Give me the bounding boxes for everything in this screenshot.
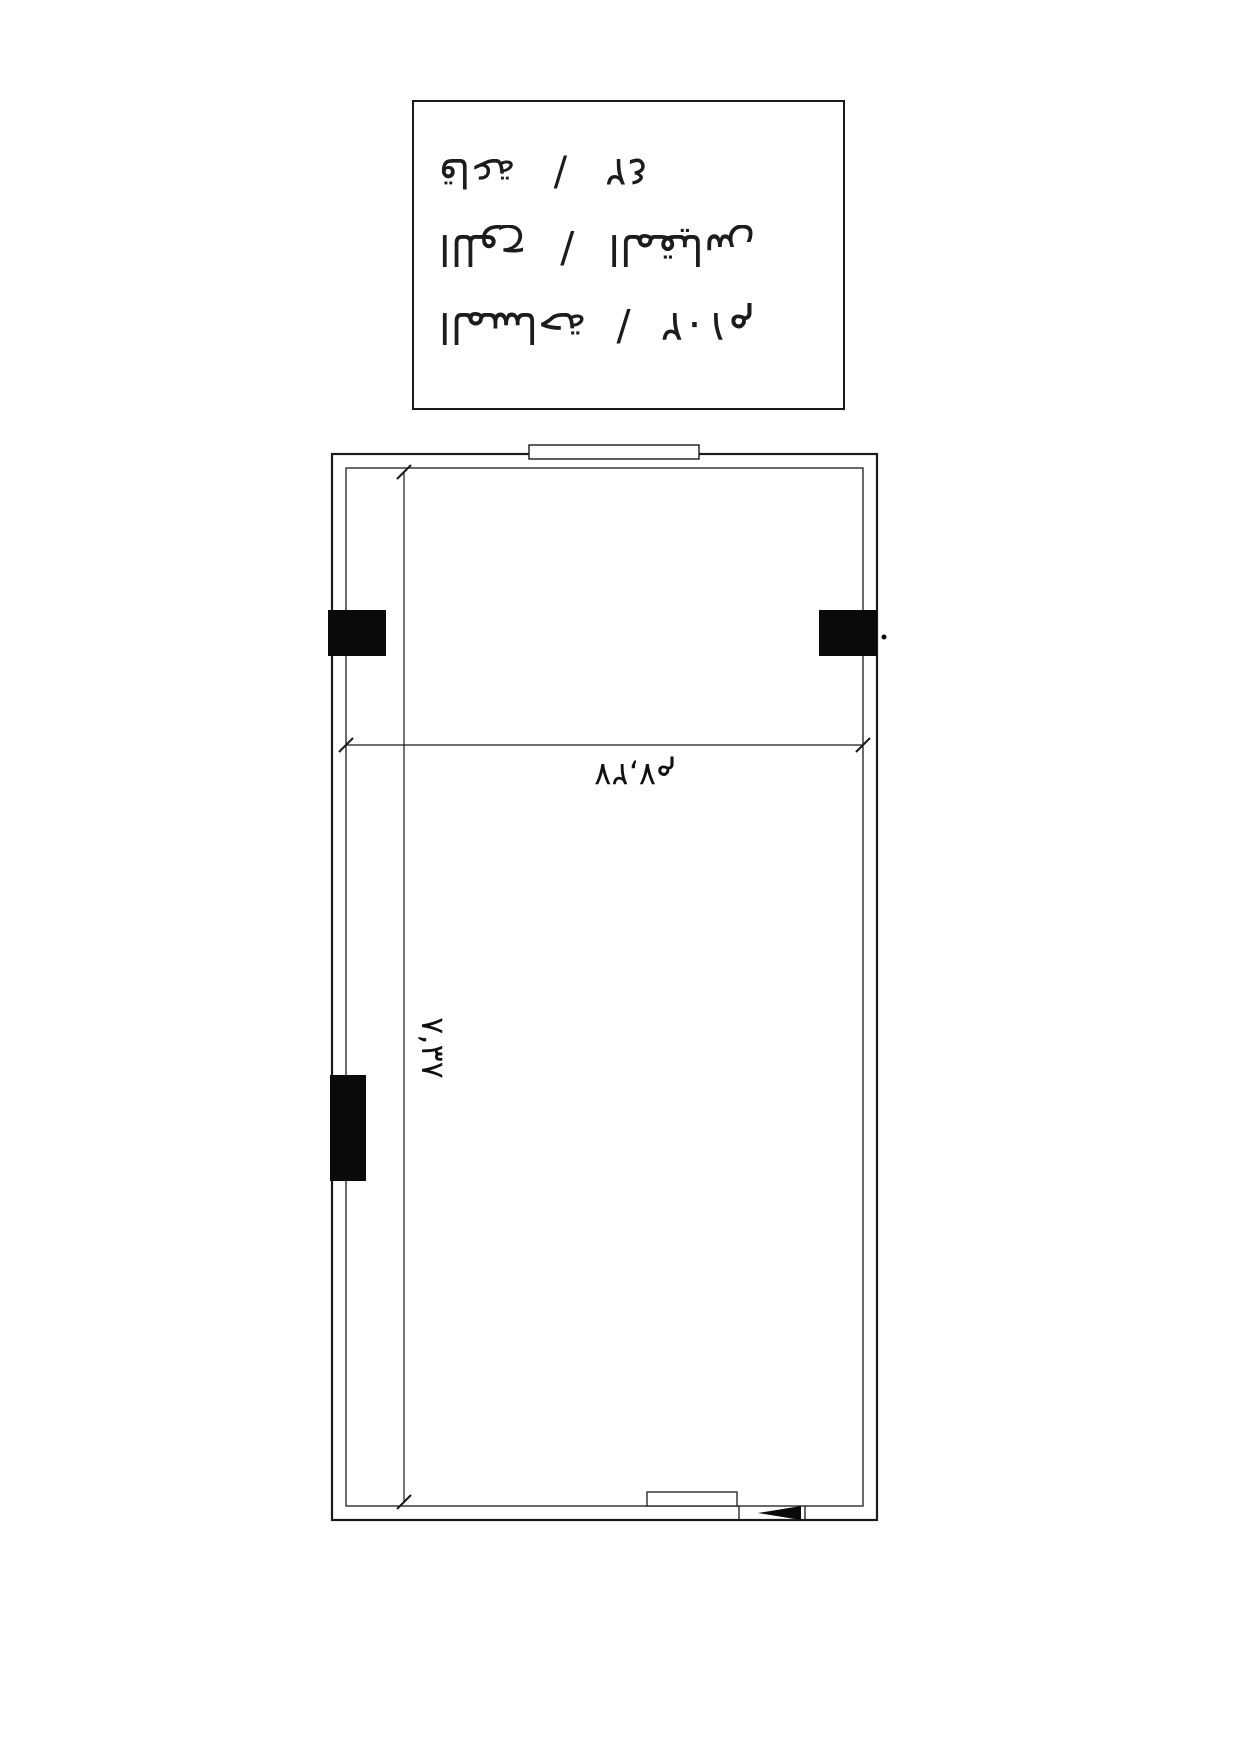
scanned-drawing-sheet: ٤٢ / قاعة المقياس / اللوح ١٠٢م / المساحة…	[0, 0, 1241, 1755]
title-block: ٤٢ / قاعة المقياس / اللوح ١٠٢م / المساحة	[412, 100, 845, 410]
column-top-left	[328, 610, 386, 656]
column-mid-left	[330, 1075, 366, 1181]
area-label: المساحة	[439, 304, 587, 353]
separator-slash: /	[550, 149, 571, 195]
area-value: ١٠٢م	[661, 304, 755, 353]
sheet-value: المقياس	[608, 226, 755, 275]
title-block-row-sheet: المقياس / اللوح	[439, 214, 755, 286]
separator-slash: /	[556, 226, 578, 275]
door-recess-notch	[647, 1492, 737, 1506]
column-top-right	[819, 610, 877, 656]
dim-text-horizontal: ٧,٢٧م	[560, 752, 710, 798]
hall-label: قاعة	[439, 149, 516, 195]
title-block-row-area: ١٠٢م / المساحة	[439, 292, 754, 364]
wall-outer-rectangle	[332, 454, 877, 1520]
title-block-row-hall: ٤٢ / قاعة	[439, 140, 648, 204]
dim-text-vertical: ٧,٣٧	[413, 988, 453, 1108]
scan-speck-dot	[882, 635, 887, 640]
wall-inner-rectangle	[346, 468, 863, 1506]
window-top-opening	[529, 445, 699, 459]
sheet-label: اللوح	[439, 226, 526, 275]
separator-slash: /	[613, 304, 635, 353]
hall-number-value: ٤٢	[605, 149, 648, 195]
